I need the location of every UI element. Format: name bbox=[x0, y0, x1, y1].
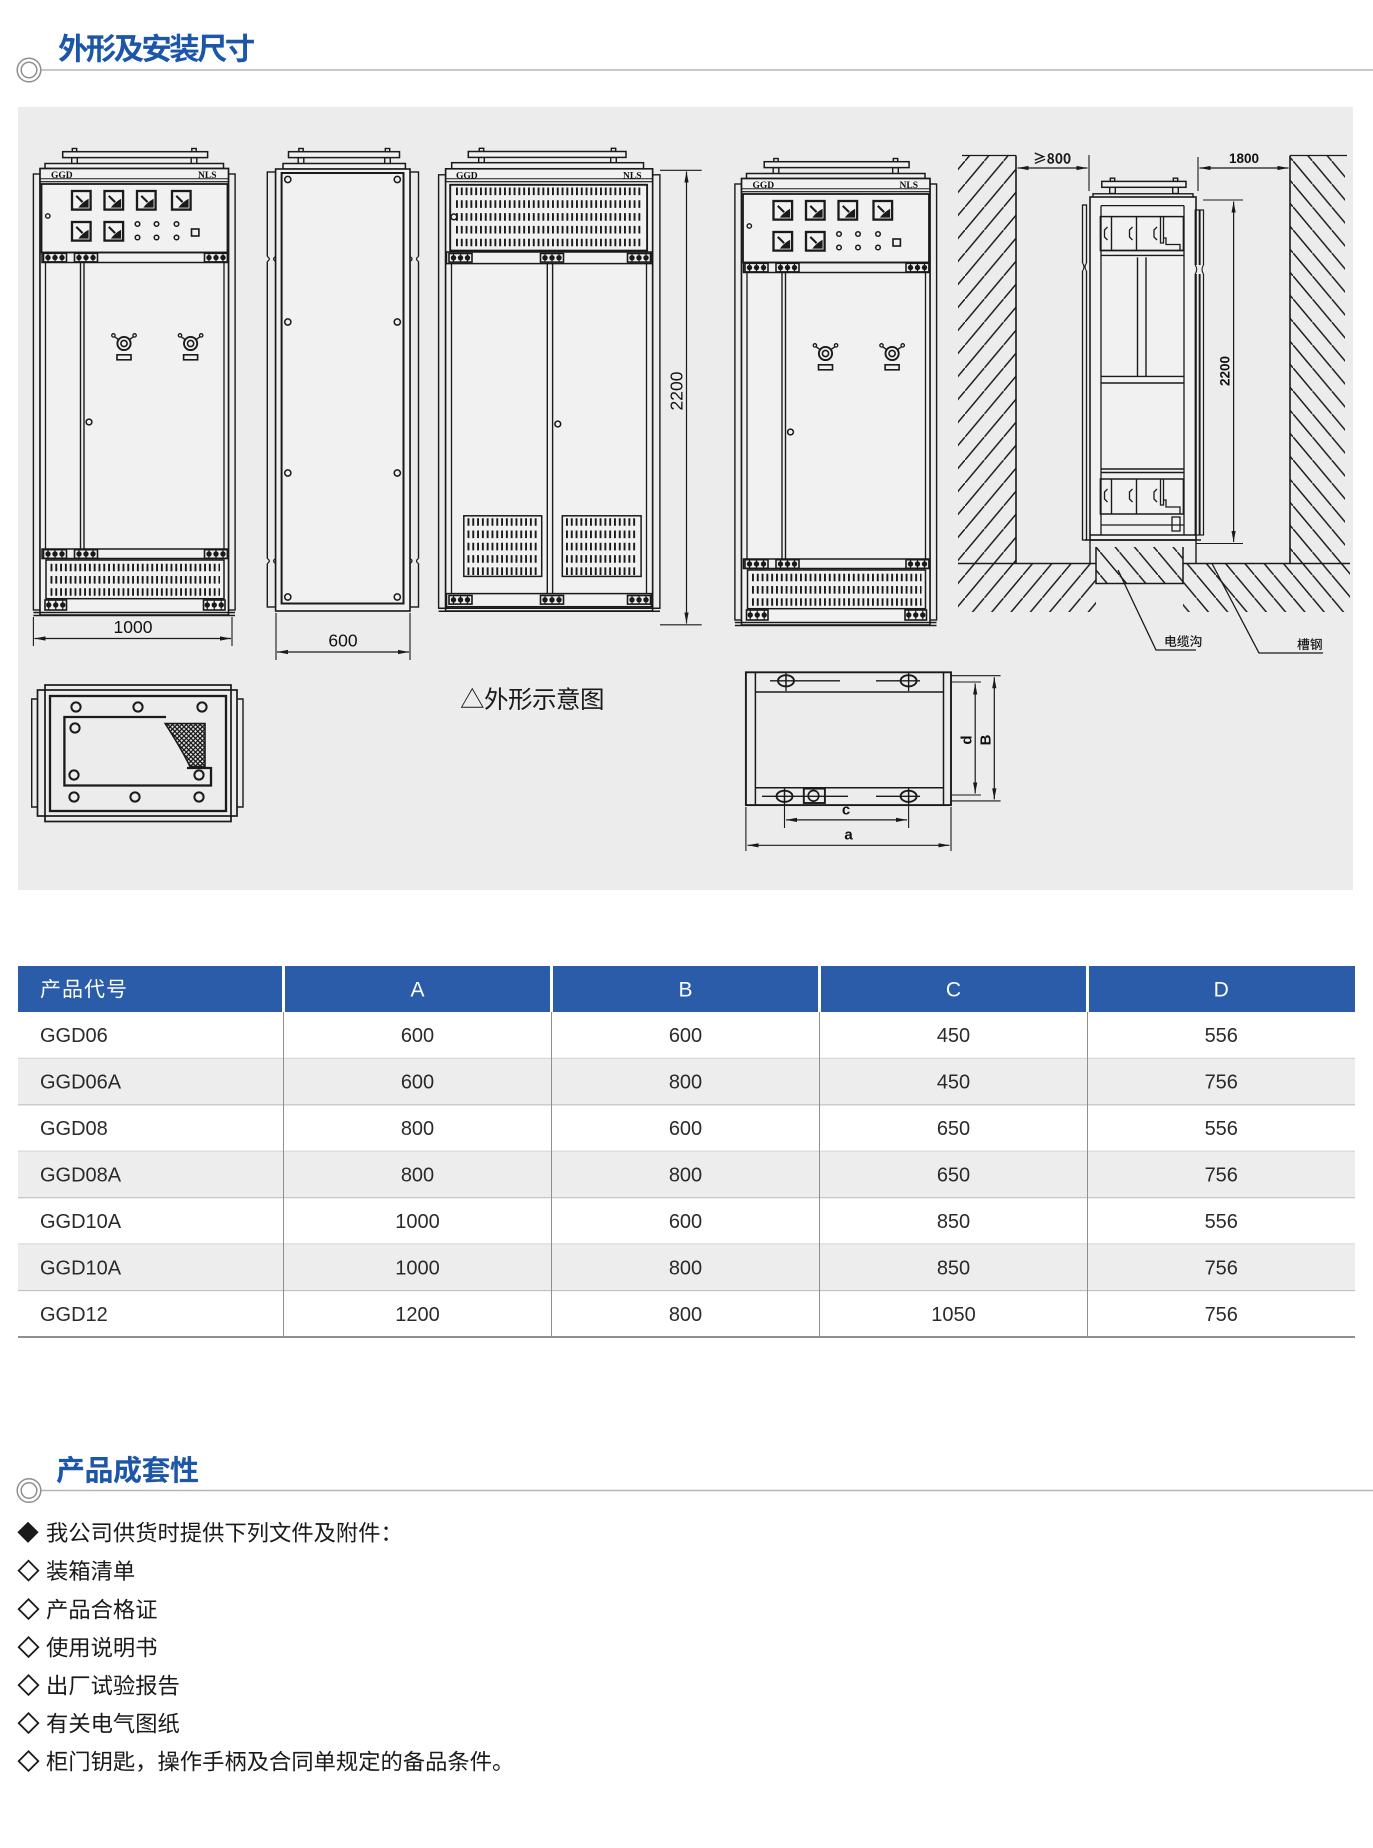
svg-text:GGD10A: GGD10A bbox=[40, 1257, 122, 1279]
svg-text:1200: 1200 bbox=[395, 1304, 440, 1326]
svg-text:800: 800 bbox=[669, 1165, 702, 1187]
svg-text:650: 650 bbox=[937, 1165, 970, 1187]
svg-text:B: B bbox=[678, 979, 692, 1002]
svg-text:B: B bbox=[978, 734, 995, 745]
svg-text:450: 450 bbox=[937, 1072, 970, 1094]
svg-text:C: C bbox=[946, 979, 961, 1002]
svg-text:450: 450 bbox=[937, 1025, 970, 1047]
svg-text:1000: 1000 bbox=[114, 617, 153, 637]
svg-text:A: A bbox=[410, 979, 424, 1002]
svg-text:d: d bbox=[959, 735, 976, 744]
svg-text:2200: 2200 bbox=[1218, 356, 1233, 386]
svg-text:NLS: NLS bbox=[623, 171, 641, 181]
svg-text:800: 800 bbox=[669, 1072, 702, 1094]
svg-text:556: 556 bbox=[1205, 1211, 1238, 1233]
svg-text:GGD08A: GGD08A bbox=[40, 1165, 122, 1187]
svg-text:600: 600 bbox=[669, 1025, 702, 1047]
svg-text:556: 556 bbox=[1205, 1118, 1238, 1140]
svg-text:756: 756 bbox=[1205, 1165, 1238, 1187]
svg-text:850: 850 bbox=[937, 1257, 970, 1279]
svg-text:GGD12: GGD12 bbox=[40, 1304, 108, 1326]
svg-text:756: 756 bbox=[1205, 1072, 1238, 1094]
svg-text:GGD: GGD bbox=[456, 171, 478, 181]
svg-text:1050: 1050 bbox=[931, 1304, 976, 1326]
svg-text:a: a bbox=[844, 827, 853, 844]
svg-text:600: 600 bbox=[669, 1211, 702, 1233]
svg-text:GGD10A: GGD10A bbox=[40, 1211, 122, 1233]
svg-text:GGD08: GGD08 bbox=[40, 1118, 108, 1140]
svg-text:800: 800 bbox=[669, 1304, 702, 1326]
svg-text:1800: 1800 bbox=[1229, 151, 1259, 166]
svg-text:800: 800 bbox=[401, 1165, 434, 1187]
svg-text:c: c bbox=[842, 802, 850, 819]
svg-text:850: 850 bbox=[937, 1211, 970, 1233]
svg-text:GGD06: GGD06 bbox=[40, 1025, 108, 1047]
svg-text:GGD06A: GGD06A bbox=[40, 1072, 122, 1094]
svg-text:1000: 1000 bbox=[395, 1257, 440, 1279]
svg-text:556: 556 bbox=[1205, 1025, 1238, 1047]
svg-text:756: 756 bbox=[1205, 1257, 1238, 1279]
svg-text:756: 756 bbox=[1205, 1304, 1238, 1326]
svg-text:600: 600 bbox=[401, 1072, 434, 1094]
svg-text:600: 600 bbox=[328, 631, 357, 651]
svg-text:650: 650 bbox=[937, 1118, 970, 1140]
svg-text:800: 800 bbox=[669, 1257, 702, 1279]
svg-text:1000: 1000 bbox=[395, 1211, 440, 1233]
svg-text:D: D bbox=[1214, 979, 1229, 1002]
svg-text:600: 600 bbox=[669, 1118, 702, 1140]
svg-text:2200: 2200 bbox=[667, 371, 687, 410]
svg-text:800: 800 bbox=[401, 1118, 434, 1140]
svg-text:600: 600 bbox=[401, 1025, 434, 1047]
